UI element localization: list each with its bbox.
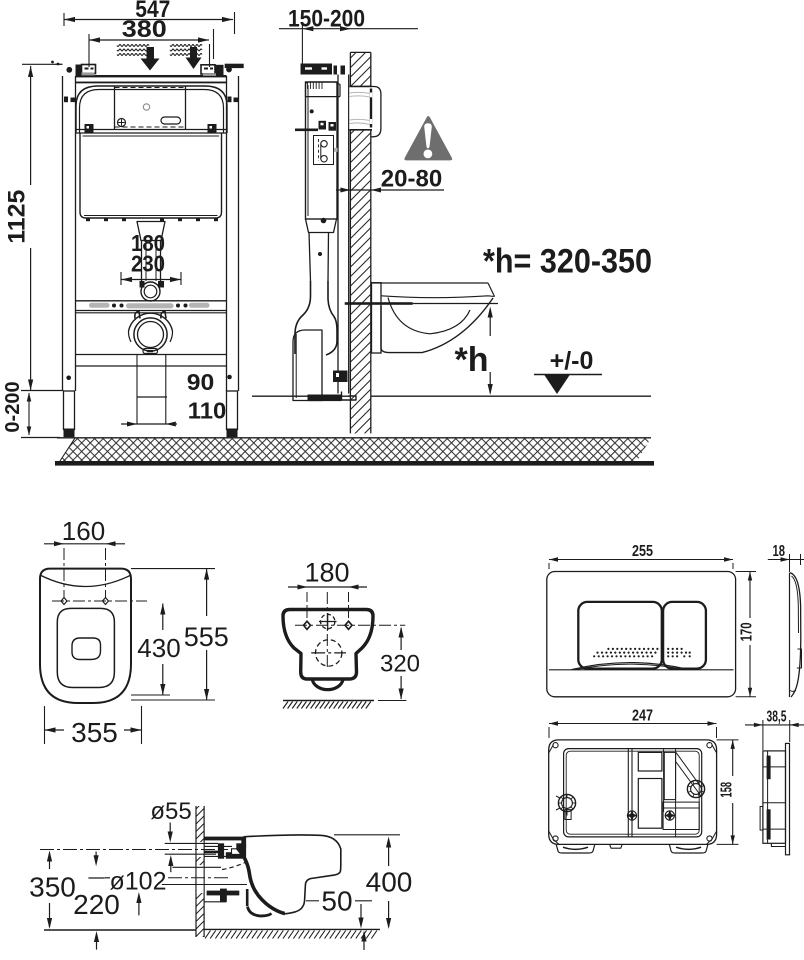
- svg-text:110: 110: [188, 398, 227, 424]
- svg-text:430: 430: [137, 633, 180, 663]
- svg-text:320: 320: [380, 651, 420, 678]
- svg-text:255: 255: [632, 543, 653, 560]
- svg-text:380: 380: [122, 16, 167, 43]
- svg-text:1125: 1125: [4, 190, 31, 244]
- svg-text:555: 555: [184, 622, 229, 652]
- svg-text:170: 170: [739, 622, 756, 641]
- svg-text:400: 400: [366, 867, 413, 898]
- svg-text:247: 247: [632, 708, 653, 725]
- svg-text:18: 18: [772, 543, 785, 560]
- svg-text:ø55: ø55: [150, 798, 191, 825]
- svg-text:355: 355: [71, 717, 118, 748]
- svg-text:+/-0: +/-0: [550, 347, 594, 375]
- svg-text:0-200: 0-200: [2, 381, 24, 432]
- svg-text:180: 180: [304, 558, 349, 588]
- svg-text:38,5: 38,5: [767, 709, 787, 726]
- svg-text:350: 350: [29, 872, 76, 903]
- svg-text:230: 230: [131, 251, 165, 277]
- svg-text:160: 160: [62, 516, 105, 546]
- svg-text:220: 220: [73, 889, 120, 920]
- svg-text:158: 158: [719, 782, 736, 798]
- svg-text:90: 90: [187, 369, 215, 395]
- svg-text:*h= 320-350: *h= 320-350: [483, 243, 652, 281]
- svg-text:50: 50: [321, 886, 352, 917]
- svg-text:20-80: 20-80: [381, 166, 442, 193]
- svg-text:*h: *h: [455, 341, 489, 379]
